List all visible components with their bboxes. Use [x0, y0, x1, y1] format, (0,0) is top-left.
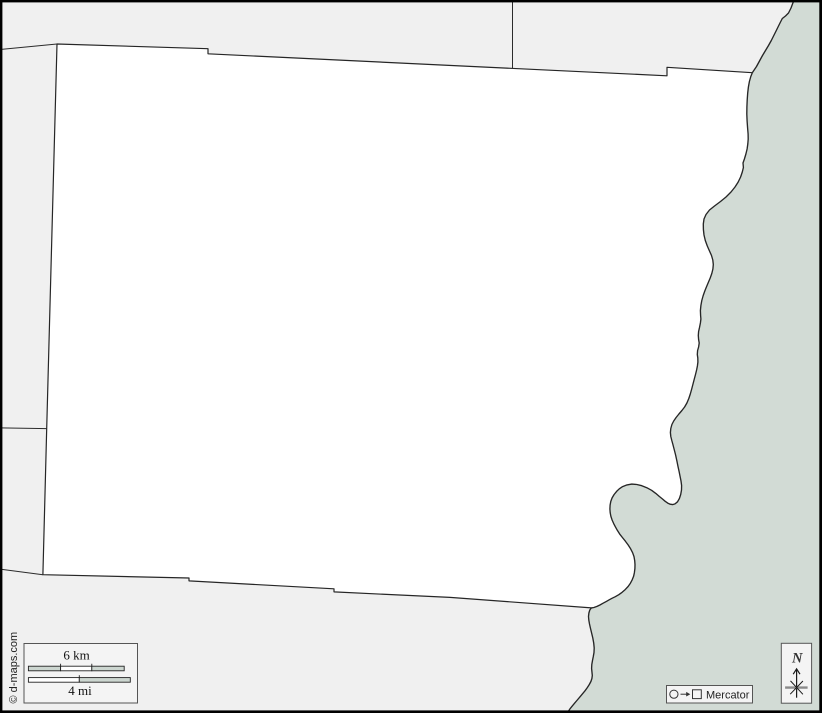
svg-text:N: N — [791, 651, 803, 667]
svg-text:Mercator: Mercator — [706, 689, 750, 701]
svg-text:6 km: 6 km — [63, 648, 89, 663]
svg-text:© d-maps.com: © d-maps.com — [8, 632, 20, 704]
svg-text:4 mi: 4 mi — [68, 683, 92, 698]
